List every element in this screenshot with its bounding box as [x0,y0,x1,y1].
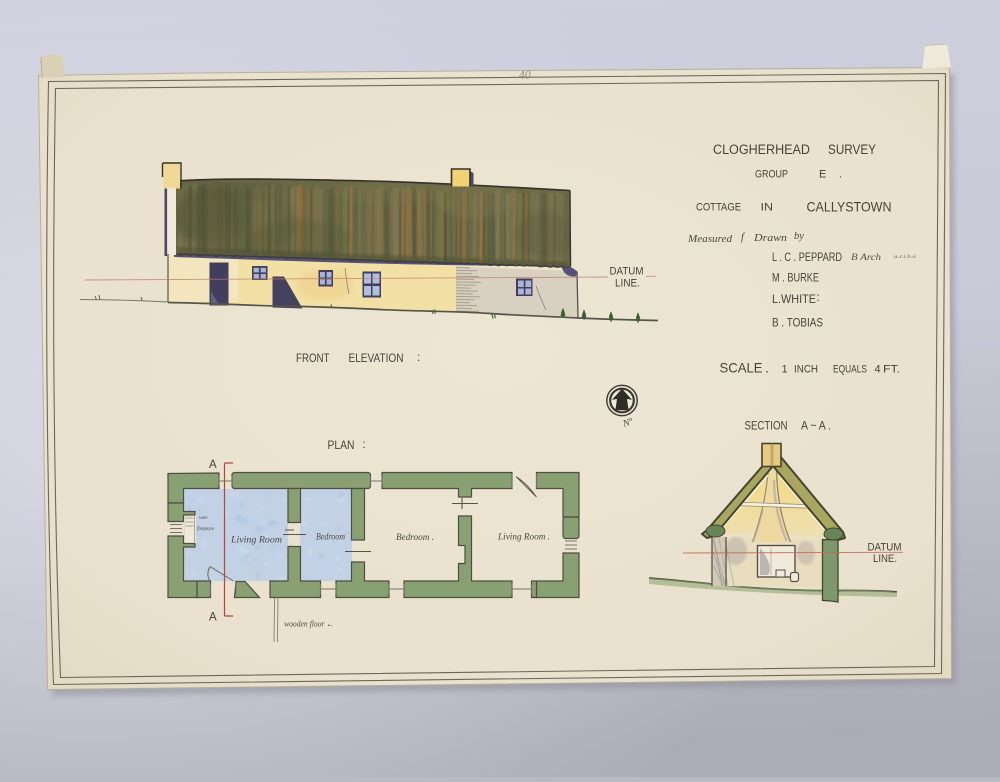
svg-text:by: by [794,231,804,242]
svg-text:CLOGHERHEAD: CLOGHERHEAD [713,142,810,157]
svg-text:40: 40 [518,67,531,82]
svg-text:Bedroom .: Bedroom . [396,533,434,543]
svg-text:B Arch: B Arch [851,252,882,262]
svg-text:B . TOBIAS: B . TOBIAS [772,316,823,330]
svg-text:wooden floor ←: wooden floor ← [284,619,334,629]
svg-text:LINE.: LINE. [615,278,640,290]
svg-text:DATUM: DATUM [868,542,902,554]
svg-text:Drawn: Drawn [753,233,787,244]
svg-text:M . BURKE: M . BURKE [772,271,819,285]
svg-text::: : [417,352,420,364]
svg-text:A ~ A .: A ~ A . [801,419,831,433]
svg-text:L.WHITE: L.WHITE [772,292,816,306]
svg-text:DATUM: DATUM [610,266,644,278]
svg-text:SURVEY: SURVEY [828,142,876,157]
svg-text:A: A [209,459,217,471]
svg-text:fireplace: fireplace [197,525,214,532]
svg-text:A: A [209,612,217,624]
svg-text:wee: wee [199,515,208,521]
svg-text:Living Room .: Living Room . [497,533,550,543]
svg-text:PLAN: PLAN [328,440,355,452]
svg-text:SCALE: SCALE [720,360,763,376]
svg-text:L . C . PEPPARD: L . C . PEPPARD [772,250,842,264]
svg-text::: : [817,290,820,304]
svg-text:CALLYSTOWN: CALLYSTOWN [807,199,892,215]
svg-text:COTTAGE: COTTAGE [696,202,741,214]
svg-text:1: 1 [782,364,788,376]
svg-text:E: E [819,169,826,181]
svg-text::: : [363,439,366,451]
svg-text:.: . [839,169,842,181]
svg-text:LINE.: LINE. [873,553,897,565]
svg-text:u.r.i.b.a: u.r.i.b.a [894,254,916,260]
svg-text:ELEVATION: ELEVATION [349,353,404,365]
svg-text:.: . [765,360,769,376]
svg-text:Living Room: Living Room [230,536,282,546]
svg-text:FRONT: FRONT [296,353,330,365]
svg-text:4: 4 [875,364,881,376]
svg-text:EQUALS: EQUALS [833,364,867,376]
svg-text:FT.: FT. [883,364,900,376]
svg-text:Bedroom: Bedroom [316,532,345,542]
svg-text:GROUP: GROUP [755,169,788,181]
svg-text:INCH: INCH [794,364,818,376]
svg-text:Measured: Measured [687,234,733,245]
svg-text:SECTION: SECTION [745,419,788,433]
svg-text:IN: IN [761,202,774,214]
